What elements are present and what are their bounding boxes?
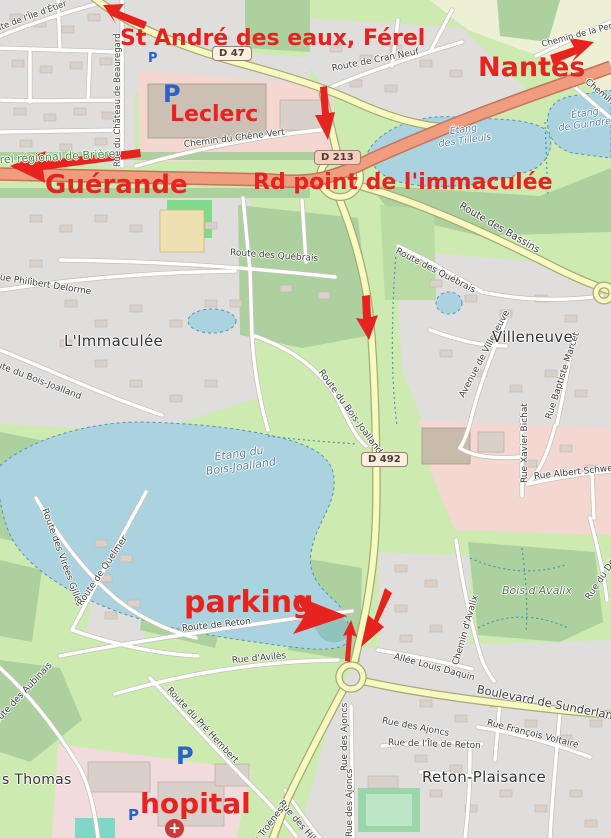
annotation-rd-point: Rd point de l'immaculée bbox=[253, 172, 553, 194]
road-badge-d492: D 492 bbox=[361, 452, 408, 467]
street-label-ajoncs-2: Rue des Ajoncs bbox=[340, 703, 350, 771]
place-label-immaculee: L'Immaculée bbox=[64, 332, 163, 350]
annotation-nantes: Nantes bbox=[478, 54, 585, 81]
hospital-icon: + bbox=[165, 819, 184, 838]
green-label-bois-avalix: Bois d'Avalix bbox=[502, 584, 572, 597]
annotation-leclerc: Leclerc bbox=[170, 104, 258, 126]
annotation-guerande: Guérande bbox=[45, 172, 188, 198]
street-label-ajoncs-3: Rue des Ajoncs bbox=[345, 769, 355, 837]
place-label-reton-plaisance: Reton-Plaisance bbox=[422, 768, 546, 786]
map-container[interactable]: Route de l'Île d'Étier Rue du Château de… bbox=[0, 0, 611, 838]
annotation-parking: parking bbox=[184, 588, 314, 618]
place-label-villeneuve: Villeneuve bbox=[492, 328, 573, 346]
parking-icon: P bbox=[148, 52, 158, 65]
street-label-xavier-bichat: Rue Xavier Bichat bbox=[520, 403, 530, 483]
annotation-st-andre: St André des eaux, Férel bbox=[120, 28, 425, 50]
place-label-thomas: s Thomas bbox=[2, 772, 72, 788]
hospital-cross-glyph: + bbox=[168, 819, 181, 837]
road-badge-d213: D 213 bbox=[314, 150, 361, 165]
parking-icon: P bbox=[128, 808, 139, 823]
annotation-hopital: hopital bbox=[140, 790, 251, 818]
parking-icon: P bbox=[176, 744, 194, 768]
